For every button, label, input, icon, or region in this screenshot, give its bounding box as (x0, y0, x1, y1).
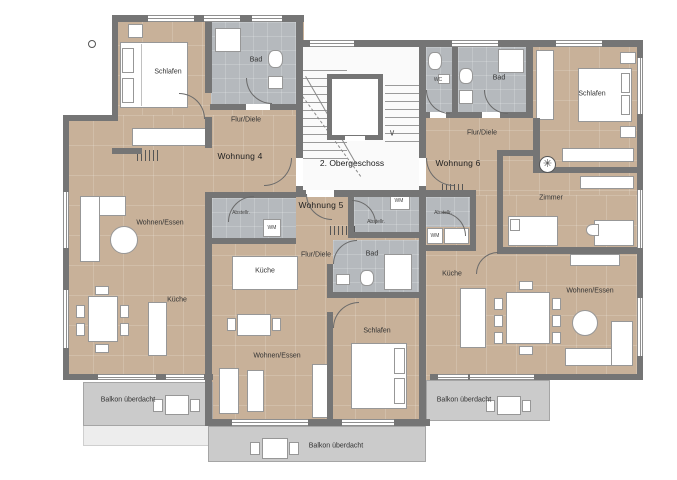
wall (419, 40, 426, 426)
balcony-label-center: Balkon überdacht (309, 443, 363, 450)
wall (205, 192, 212, 244)
room-floor-w4-abstell (212, 198, 296, 238)
chair (227, 318, 236, 331)
desk (594, 220, 634, 246)
room-label-w4-kueche: Küche (167, 297, 187, 304)
bed-pillow (621, 95, 630, 115)
sofa (219, 368, 239, 414)
chair (519, 281, 533, 290)
desk-chair (586, 224, 599, 236)
wall (205, 117, 212, 148)
chair (95, 344, 109, 353)
balcony-table (262, 438, 288, 459)
wall (426, 190, 476, 197)
room-label-w4-abstell: Abstellr. (232, 210, 250, 216)
window (204, 15, 240, 22)
wall (112, 15, 118, 121)
chair (250, 442, 260, 455)
window (63, 290, 69, 348)
shower (498, 49, 524, 73)
chair (522, 400, 531, 412)
wall (205, 242, 212, 426)
balcony-label-right: Balkon überdacht (437, 397, 491, 404)
room-label-w6-wc: WC (434, 77, 442, 83)
bed-pillow (510, 219, 520, 231)
bed-split-line (141, 44, 142, 106)
chair (190, 399, 200, 412)
toilet (459, 68, 473, 84)
floor-plan: ∨ (0, 0, 677, 480)
chair (519, 346, 533, 355)
room-label-w5-wm: WM (395, 198, 404, 204)
wall (63, 115, 118, 121)
window (232, 419, 308, 426)
nightstand (620, 52, 636, 64)
room-label-w4-wohnen: Wohnen/Essen (136, 220, 183, 227)
chair (95, 286, 109, 295)
sideboard (570, 254, 620, 266)
room-label-w4-wm: WM (268, 225, 277, 231)
balcony-table (165, 395, 189, 415)
door-opening (419, 158, 426, 186)
wall (426, 245, 476, 251)
chair (120, 305, 129, 318)
chair (494, 332, 503, 344)
room-label-w6-kueche: Küche (442, 271, 462, 278)
wall (205, 238, 296, 244)
wall (497, 247, 643, 254)
window (637, 298, 643, 356)
window (310, 40, 354, 47)
chair (494, 298, 503, 310)
bed-pillow (122, 48, 134, 73)
apartment-label-w6: Wohnung 6 (435, 158, 480, 168)
bed-pillow (394, 348, 405, 374)
sink (459, 90, 473, 104)
shower (215, 28, 241, 52)
window (637, 58, 643, 114)
sofa (611, 321, 633, 366)
chair (76, 323, 85, 336)
kitchen-counter (460, 288, 486, 348)
floor-level-label: 2. Obergeschoss (320, 158, 384, 168)
fan-glyph: ✳ (543, 159, 552, 170)
kitchen-counter (148, 302, 167, 356)
window (470, 374, 534, 380)
room-label-w4-schlafen: Schlafen (154, 69, 181, 76)
door-opening (482, 112, 500, 118)
door-opening (246, 104, 270, 110)
wall (470, 190, 476, 247)
room-label-w4-flur: Flur/Diele (231, 117, 261, 124)
chair (272, 318, 281, 331)
tv-board (312, 364, 328, 418)
window (342, 419, 394, 426)
room-label-w6-abstell: Abstellr. (434, 210, 452, 216)
sideboard (247, 370, 264, 412)
sideboard (580, 176, 634, 189)
wall (205, 15, 212, 93)
dining-table (88, 296, 118, 342)
bed-pillow (122, 78, 134, 103)
room-label-w5-kueche: Küche (255, 268, 275, 275)
room-label-w6-zimmer: Zimmer (539, 195, 563, 202)
elevator-door (345, 136, 365, 141)
stair-arrow-icon: ∨ (389, 128, 396, 139)
room-label-w6-schlafen: Schlafen (578, 91, 605, 98)
balcony-table (497, 396, 521, 415)
window (452, 40, 498, 47)
bathtub (384, 254, 412, 290)
window (252, 15, 282, 22)
window (63, 192, 69, 248)
room-label-w4-bad: Bad (250, 57, 262, 64)
room-label-w6-flur: Flur/Diele (467, 130, 497, 137)
wardrobe (536, 50, 554, 120)
room-label-w6-wohnen: Wohnen/Essen (566, 288, 613, 295)
room-label-w6-wm: WM (431, 233, 440, 239)
toilet (360, 270, 374, 286)
window (637, 190, 643, 248)
apartment-label-w4: Wohnung 4 (217, 151, 262, 161)
chair (552, 298, 561, 310)
toilet (268, 50, 283, 68)
nightstand (620, 126, 636, 138)
window (556, 40, 602, 47)
sink (336, 274, 350, 285)
toilet (428, 52, 442, 70)
room-label-w5-abstell: Abstellr. (367, 219, 385, 225)
nightstand (128, 24, 143, 38)
sideboard (562, 148, 634, 162)
wardrobe (132, 128, 212, 146)
wall (497, 150, 503, 250)
window (166, 374, 204, 380)
wall (327, 292, 419, 298)
door-opening (296, 158, 303, 186)
bed-pillow (394, 378, 405, 404)
survey-point-marker-icon (88, 40, 96, 48)
chair (552, 315, 561, 327)
chair (120, 323, 129, 336)
wall (452, 46, 458, 118)
room-label-w5-bad: Bad (366, 251, 378, 258)
wall (497, 150, 540, 156)
round-table (572, 310, 598, 336)
chair (76, 305, 85, 318)
wall (112, 148, 142, 154)
room-label-w5-wohnen: Wohnen/Essen (253, 353, 300, 360)
room-label-w6-bad: Bad (493, 75, 505, 82)
chair (494, 315, 503, 327)
bed-pillow (621, 73, 630, 93)
balcony-label-left: Balkon überdacht (101, 397, 155, 404)
window (438, 374, 468, 380)
window (98, 374, 156, 380)
chair (552, 332, 561, 344)
window (148, 15, 194, 22)
room-label-w5-schlafen: Schlafen (363, 328, 390, 335)
wall (526, 46, 533, 118)
round-table (110, 226, 138, 254)
elevator-car (332, 79, 378, 135)
wall (327, 312, 333, 419)
dining-table (237, 314, 271, 336)
dining-table (506, 292, 550, 344)
wall (348, 232, 419, 238)
sofa (80, 196, 100, 262)
chair (289, 442, 299, 455)
apartment-label-w5: Wohnung 5 (298, 200, 343, 210)
terrace-extension (83, 424, 215, 446)
ceiling-fan-icon: ✳ (539, 156, 556, 173)
room-label-w5-flur: Flur/Diele (301, 252, 331, 259)
